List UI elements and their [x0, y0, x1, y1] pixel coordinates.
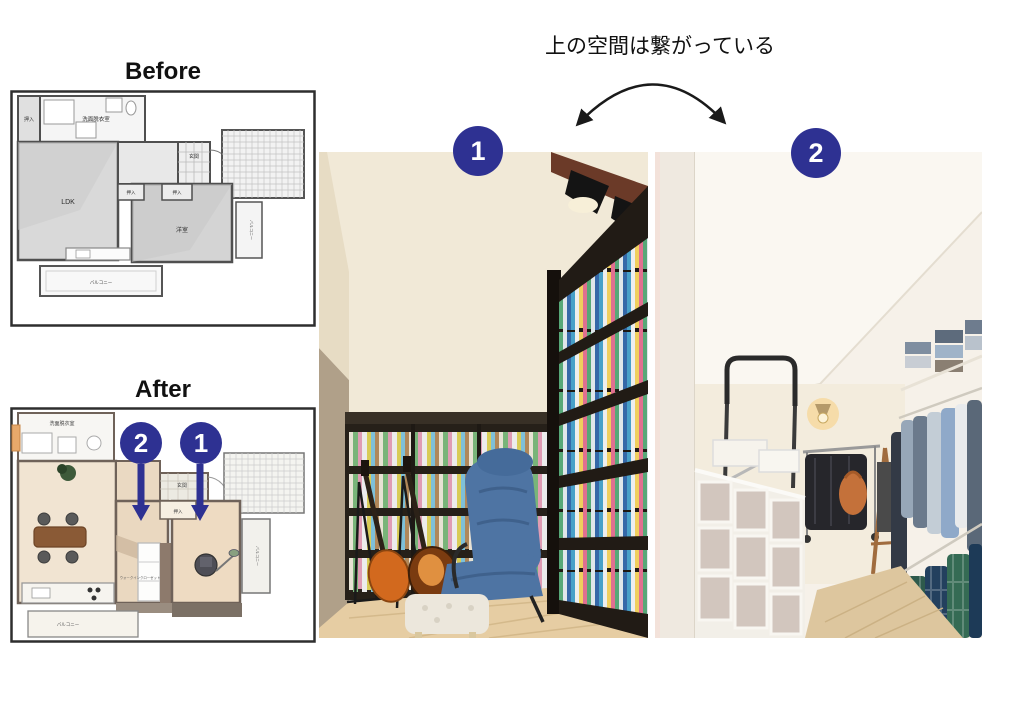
curved-arrow-icon — [560, 58, 742, 136]
before-label-balcony-right: バルコニー — [249, 220, 254, 240]
after-marker-badge-1: 1 — [180, 422, 222, 464]
after-heading: After — [10, 376, 316, 404]
before-label-closet-1: 押入 — [127, 189, 136, 196]
before-label-closet-2: 押入 — [173, 189, 182, 196]
photo-1-badge: 1 — [453, 126, 503, 176]
before-label-ldk: LDK — [61, 199, 75, 206]
photo-2-badge: 2 — [791, 128, 841, 178]
after-floorplan: 洗面脱衣室 玄関 押入 ウォークインクローゼット バルコニー バルコニー 2 1 — [10, 407, 316, 643]
caption-text: 上の空間は繋がっている — [540, 30, 780, 60]
after-label-wic: ウォークインクローゼット — [120, 575, 161, 580]
photo-library — [319, 152, 648, 638]
before-heading: Before — [10, 58, 316, 86]
photo-closet — [655, 152, 982, 638]
before-label-washroom: 洗面脱衣室 — [82, 115, 110, 123]
photo-2-badge-number: 2 — [808, 138, 823, 169]
after-label-closet: 押入 — [174, 508, 183, 515]
svg-text:1: 1 — [194, 428, 208, 458]
after-label-entrance: 玄関 — [177, 482, 187, 489]
before-label-bedroom: 洋室 — [176, 226, 188, 234]
after-label-balcony-right: バルコニー — [255, 546, 260, 566]
after-label-balcony-bottom: バルコニー — [57, 622, 80, 627]
after-marker-badge-2: 2 — [120, 422, 162, 464]
photo-1-badge-number: 1 — [470, 136, 485, 167]
before-label-balcony-bottom: バルコニー — [90, 280, 113, 285]
before-label-closet-left: 押入 — [24, 116, 34, 123]
svg-text:2: 2 — [134, 428, 148, 458]
after-label-washroom: 洗面脱衣室 — [49, 420, 74, 427]
before-floorplan: 押入 洗面脱衣室 LDK 玄関 押入 押入 洋室 バルコニー バルコニー — [10, 90, 316, 327]
before-label-entrance: 玄関 — [189, 153, 199, 160]
page: 上の空間は繋がっている Before — [0, 0, 1024, 720]
